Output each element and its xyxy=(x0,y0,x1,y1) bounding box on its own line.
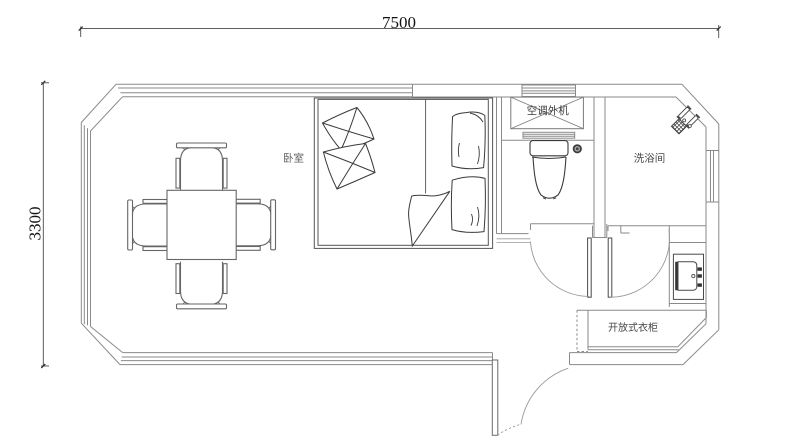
svg-text:洗浴间: 洗浴间 xyxy=(634,152,666,165)
svg-text:3300: 3300 xyxy=(26,207,45,241)
svg-text:开放式衣柜: 开放式衣柜 xyxy=(608,321,658,334)
svg-text:卧室: 卧室 xyxy=(283,152,304,165)
svg-text:空调外机: 空调外机 xyxy=(527,104,569,117)
svg-text:7500: 7500 xyxy=(382,13,416,32)
